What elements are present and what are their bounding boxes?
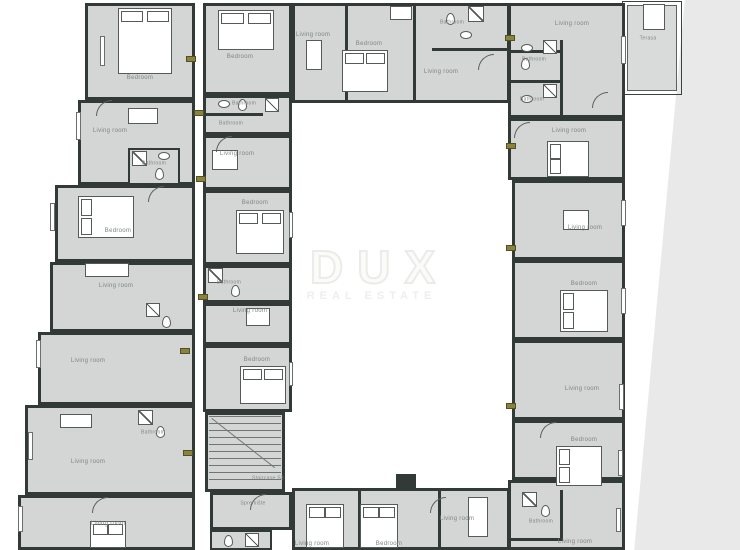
unit-tag — [506, 245, 516, 251]
room-label: Living room — [233, 308, 267, 314]
wall — [508, 538, 563, 541]
room-label: Living room — [71, 459, 105, 465]
room-label: Bedroom — [376, 541, 402, 547]
toilet — [231, 285, 240, 297]
room-label: Bathroom — [529, 520, 553, 525]
window — [18, 506, 23, 532]
room-label: Bedroom — [356, 41, 382, 47]
shower — [522, 492, 537, 507]
room-label: Living room — [565, 386, 599, 392]
unit-tag — [505, 35, 515, 41]
wall — [560, 490, 563, 540]
bed — [218, 10, 274, 50]
shower — [245, 533, 259, 547]
toilet — [155, 168, 164, 180]
room-label: Living room — [555, 21, 589, 27]
sofa — [85, 263, 129, 277]
room-block — [512, 340, 625, 420]
table — [306, 40, 322, 70]
floor-plan: Bedroom Living room Bathroom Bedroom Liv… — [0, 0, 740, 550]
unit-tag — [196, 176, 206, 182]
watermark-logo: DUX — [296, 240, 442, 294]
window — [621, 288, 626, 314]
unit-tag — [180, 348, 190, 354]
room-label: Bedroom — [105, 228, 131, 234]
room-block — [38, 332, 195, 405]
room-label: Living room — [552, 128, 586, 134]
window — [621, 200, 626, 226]
wall — [432, 48, 510, 51]
window — [76, 112, 81, 140]
room-label: Living room — [99, 283, 133, 289]
shower — [146, 303, 160, 317]
bed — [236, 210, 284, 254]
wall — [413, 3, 416, 103]
shower — [543, 84, 557, 98]
terrace-table — [643, 4, 665, 30]
room-label: Bathroom — [522, 58, 546, 63]
wall — [560, 40, 563, 120]
window — [616, 508, 621, 532]
window — [28, 432, 33, 460]
room-block — [210, 492, 292, 530]
room-label: Bedroom — [244, 357, 270, 363]
room-label: Living room — [440, 516, 474, 522]
room-label: Living room — [558, 539, 592, 545]
room-label: Bathroom — [141, 431, 165, 436]
room-label: Spremište — [240, 502, 265, 507]
window — [289, 362, 293, 386]
sofa — [60, 414, 92, 428]
window — [621, 36, 626, 64]
sink — [521, 44, 533, 52]
shower — [265, 98, 279, 112]
room-label: Bathroom — [217, 281, 241, 286]
room-label: Bathroom — [232, 102, 256, 107]
unit-tag — [183, 450, 193, 456]
window — [619, 384, 624, 410]
bed — [240, 366, 286, 404]
shower — [138, 410, 153, 425]
room-label: Bathroom — [520, 98, 544, 103]
room-label: Bedroom — [571, 437, 597, 443]
sink — [460, 31, 472, 39]
room-label: Living room — [296, 32, 330, 38]
room-label: Bathroom — [219, 122, 243, 127]
room-label: Staircase S3 — [252, 477, 284, 482]
room-block — [25, 405, 195, 495]
watermark-subtitle: REAL ESTATE — [296, 290, 442, 302]
unit-tag — [198, 294, 208, 300]
room-label: Living room — [220, 151, 254, 157]
sink — [158, 152, 170, 160]
wall — [203, 113, 263, 116]
wall — [508, 80, 563, 83]
room-label: Bedroom — [571, 281, 597, 287]
bed — [118, 8, 172, 74]
shower — [468, 6, 484, 22]
window — [618, 450, 623, 476]
sink — [218, 100, 230, 108]
bed — [342, 50, 388, 92]
unit-tag — [194, 110, 204, 116]
room-label: Bedroom — [227, 54, 253, 60]
wardrobe — [390, 6, 412, 20]
window — [50, 203, 55, 231]
room-label: Terasa — [640, 37, 657, 42]
unit-tag — [186, 56, 196, 62]
bed — [560, 290, 608, 332]
table — [128, 108, 158, 124]
toilet — [224, 535, 233, 547]
room-label: Living room — [71, 358, 105, 364]
toilet — [541, 505, 550, 517]
bed — [547, 141, 589, 177]
room-block — [210, 530, 272, 550]
shower — [543, 40, 557, 54]
room-label: Bathroom — [142, 162, 166, 167]
toilet — [162, 316, 171, 328]
room-label: Living room — [295, 541, 329, 547]
bed — [556, 446, 602, 486]
room-label: Bedroom — [242, 200, 268, 206]
room-label: Living room — [568, 225, 602, 231]
unit-tag — [506, 403, 516, 409]
room-label: Living room — [424, 69, 458, 75]
room-label: Bedroom — [127, 75, 153, 81]
unit-tag — [506, 143, 516, 149]
room-label: Bathroom — [440, 21, 464, 26]
wall — [396, 474, 416, 488]
room-label: Living room — [93, 128, 127, 134]
window — [289, 212, 293, 238]
room-label: Living room — [91, 521, 125, 527]
window — [100, 36, 105, 66]
window — [36, 340, 41, 368]
